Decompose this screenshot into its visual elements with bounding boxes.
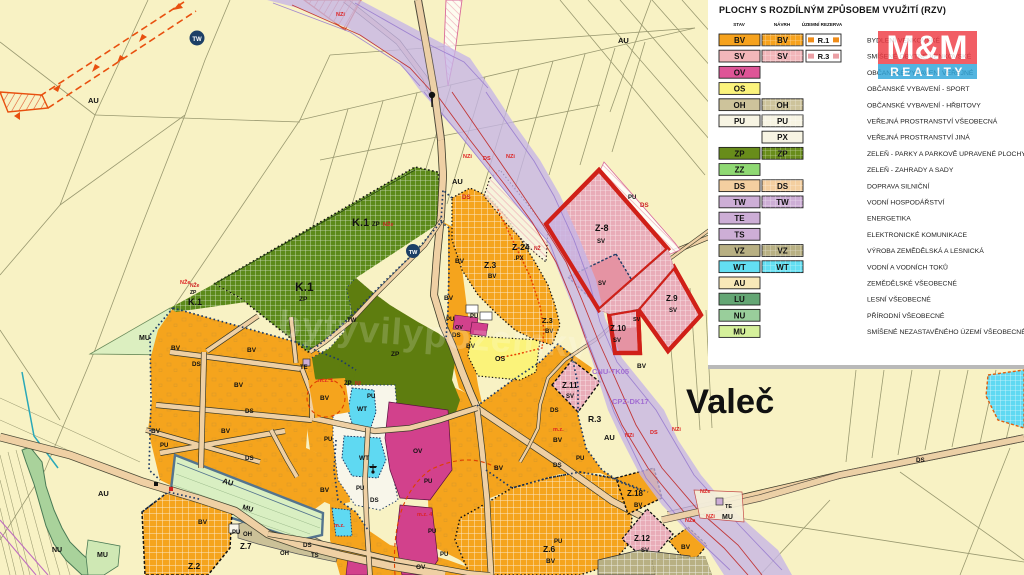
svg-text:WT: WT (733, 263, 746, 272)
svg-text:Z.11: Z.11 (562, 381, 578, 390)
svg-text:DS: DS (734, 182, 746, 191)
svg-text:NŽ: NŽ (534, 244, 541, 252)
svg-text:PU: PU (424, 479, 432, 485)
svg-text:VEŘEJNÁ PROSTRANSTVÍ VŠEOBECNÁ: VEŘEJNÁ PROSTRANSTVÍ VŠEOBECNÁ (867, 117, 998, 126)
svg-text:Z.6: Z.6 (543, 544, 556, 554)
svg-text:K.1: K.1 (295, 280, 314, 294)
svg-text:.PX: .PX (514, 256, 524, 262)
svg-text:MU: MU (139, 335, 150, 342)
svg-text:Z-24: Z-24 (512, 242, 530, 252)
svg-text:OV: OV (413, 448, 423, 455)
svg-text:TW: TW (192, 37, 202, 43)
svg-text:NZa: NZa (685, 518, 696, 524)
svg-text:TE: TE (725, 504, 732, 510)
svg-text:Z.2: Z.2 (188, 561, 201, 571)
svg-text:MU: MU (97, 552, 108, 559)
svg-text:ÚZEMNÍ REZERVA: ÚZEMNÍ REZERVA (802, 20, 843, 27)
svg-text:Z.9: Z.9 (666, 294, 678, 303)
svg-text:BV: BV (637, 363, 647, 370)
svg-text:NU: NU (734, 311, 746, 320)
svg-text:DS: DS (640, 202, 649, 209)
svg-text:PU: PU (367, 394, 375, 400)
svg-text:PŘÍRODNÍ VŠEOBECNÉ: PŘÍRODNÍ VŠEOBECNÉ (867, 311, 945, 320)
svg-text:OH: OH (280, 551, 289, 557)
svg-text:MU: MU (733, 328, 746, 337)
svg-text:ZP: ZP (372, 222, 380, 228)
svg-text:NZe: NZe (700, 489, 710, 495)
svg-text:BV: BV (198, 519, 208, 526)
svg-text:OBČANSKÉ VYBAVENÍ - HŘBITOVY: OBČANSKÉ VYBAVENÍ - HŘBITOVY (867, 100, 981, 109)
svg-text:TW: TW (409, 250, 418, 256)
svg-text:PLOCHY S ROZDÍLNÝM ZPŮSOBEM VY: PLOCHY S ROZDÍLNÝM ZPŮSOBEM VYUŽITÍ (RZV… (719, 4, 946, 15)
svg-text:ZELEŇ - PARKY A PARKOVĚ UPRAVE: ZELEŇ - PARKY A PARKOVĚ UPRAVENÉ PLOCHY (867, 149, 1024, 158)
svg-text:ZZ: ZZ (735, 166, 745, 175)
svg-text:OS: OS (734, 85, 746, 94)
svg-text:ZEMĚDĚLSKÉ VŠEOBECNÉ: ZEMĚDĚLSKÉ VŠEOBECNÉ (867, 279, 957, 288)
svg-text:NŽe: NŽe (180, 278, 190, 286)
svg-text:Z-8: Z-8 (595, 223, 609, 233)
svg-text:SMÍŠENÉ NEZASTAVĚNÉHO ÚZEMÍ VŠ: SMÍŠENÉ NEZASTAVĚNÉHO ÚZEMÍ VŠEOBECNÉ (867, 327, 1024, 336)
svg-text:LESNÍ VŠEOBECNÉ: LESNÍ VŠEOBECNÉ (867, 295, 931, 304)
svg-text:VZ: VZ (734, 247, 744, 256)
svg-text:SV: SV (734, 52, 745, 61)
svg-text:TW: TW (776, 198, 789, 207)
svg-text:BV: BV (777, 36, 789, 45)
svg-text:ELEKTRONICKÉ KOMUNIKACE: ELEKTRONICKÉ KOMUNIKACE (867, 230, 968, 239)
svg-text:VZ: VZ (777, 247, 787, 256)
svg-text:VÝROBA ZEMĚDĚLSKÁ A LESNICKÁ: VÝROBA ZEMĚDĚLSKÁ A LESNICKÁ (867, 246, 984, 255)
svg-text:STAV: STAV (733, 22, 746, 27)
svg-text:OH: OH (777, 101, 789, 110)
svg-text:BV: BV (320, 487, 330, 494)
svg-text:Z.10: Z.10 (610, 324, 627, 333)
svg-text:ZP: ZP (190, 290, 197, 296)
svg-text:DS: DS (370, 497, 379, 504)
svg-text:Z.7: Z.7 (240, 542, 252, 551)
svg-text:TS: TS (734, 230, 745, 239)
svg-text:DS: DS (303, 542, 312, 549)
svg-text:PU: PU (356, 486, 364, 492)
svg-text:ZP: ZP (734, 149, 745, 158)
svg-text:ZP: ZP (777, 149, 788, 158)
svg-text:m.z.: m.z. (334, 523, 345, 529)
svg-text:PU: PU (554, 539, 562, 545)
svg-text:OV: OV (734, 68, 746, 77)
svg-text:BV: BV (171, 345, 181, 352)
svg-text:R.3: R.3 (818, 52, 830, 61)
svg-text:NŽe: NŽe (383, 220, 393, 228)
svg-text:NZi: NZi (336, 12, 345, 18)
svg-text:PU: PU (160, 443, 168, 449)
svg-text:SV: SV (669, 308, 677, 314)
svg-text:BV: BV (247, 347, 257, 354)
svg-text:SV: SV (633, 317, 641, 323)
svg-text:M&M: M&M (886, 29, 967, 67)
svg-text:OBČANSKÉ VYBAVENÍ - SPORT: OBČANSKÉ VYBAVENÍ - SPORT (867, 84, 969, 93)
svg-text:SV: SV (777, 52, 788, 61)
svg-text:OV: OV (416, 564, 426, 571)
svg-text:DS: DS (650, 430, 658, 436)
svg-text:CNU-TK05: CNU-TK05 (592, 367, 629, 376)
svg-text:BV: BV (681, 544, 691, 551)
svg-text:BV: BV (455, 258, 465, 265)
svg-text:TE: TE (300, 365, 308, 371)
svg-text:BV: BV (494, 465, 504, 472)
svg-text:BV: BV (444, 295, 454, 302)
svg-text:BV: BV (488, 274, 496, 280)
svg-text:DS: DS (192, 361, 201, 368)
svg-text:NZi: NZi (463, 154, 472, 160)
svg-text:Z.3: Z.3 (484, 260, 497, 270)
svg-text:SV: SV (597, 239, 605, 245)
svg-text:R.3: R.3 (588, 414, 602, 424)
svg-text:NZi: NZi (625, 433, 634, 439)
svg-text:BV: BV (234, 382, 244, 389)
svg-text:NZi: NZi (672, 427, 681, 433)
svg-text:R.1: R.1 (818, 36, 830, 45)
svg-text:AU: AU (734, 279, 746, 288)
svg-text:BV: BV (221, 428, 231, 435)
svg-text:NŽe: NŽe (190, 281, 200, 289)
svg-text:m.z. 1: m.z. 1 (318, 378, 333, 384)
svg-text:DOPRAVA SILNIČNÍ: DOPRAVA SILNIČNÍ (867, 181, 930, 190)
svg-text:K.1: K.1 (188, 297, 202, 307)
svg-text:Nž: Nž (355, 381, 362, 387)
svg-text:DS: DS (245, 408, 254, 415)
svg-text:VODNÍ HOSPODÁŘSTVÍ: VODNÍ HOSPODÁŘSTVÍ (867, 198, 945, 207)
svg-text:DS: DS (462, 194, 471, 201)
svg-text:PU: PU (777, 117, 788, 126)
svg-text:MU: MU (722, 514, 733, 521)
svg-text:ZP: ZP (299, 296, 308, 303)
svg-text:m.z. 4: m.z. 4 (417, 512, 433, 518)
svg-text:BV: BV (546, 558, 556, 565)
svg-text:CPZ-DK17: CPZ-DK17 (612, 397, 649, 406)
svg-text:DS: DS (550, 407, 559, 414)
svg-text:TW: TW (733, 198, 746, 207)
svg-text:PX: PX (777, 133, 788, 142)
svg-text:PU: PU (232, 530, 240, 536)
svg-text:NZi: NZi (506, 154, 515, 160)
svg-text:PU: PU (576, 456, 584, 462)
svg-text:AU: AU (618, 36, 629, 45)
svg-text:Z.12: Z.12 (634, 534, 651, 543)
svg-text:ENERGETIKA: ENERGETIKA (867, 216, 911, 223)
svg-text:LU: LU (734, 295, 745, 304)
svg-text:PU: PU (440, 552, 448, 558)
svg-text:AU: AU (452, 177, 463, 186)
svg-text:VEŘEJNÁ PROSTRANSTVÍ JINÁ: VEŘEJNÁ PROSTRANSTVÍ JINÁ (867, 133, 970, 142)
svg-text:DS: DS (777, 182, 789, 191)
svg-text:PU: PU (628, 195, 636, 201)
svg-text:NZi: NZi (706, 514, 715, 520)
svg-text:PU: PU (734, 117, 745, 126)
svg-text:VODNÍ A VODNÍCH TOKŮ: VODNÍ A VODNÍCH TOKŮ (867, 262, 948, 271)
svg-text:REALITY: REALITY (890, 65, 966, 79)
svg-text:WT: WT (776, 263, 789, 272)
svg-text:DS: DS (553, 462, 562, 469)
svg-text:TE: TE (734, 214, 745, 223)
svg-text:AU: AU (88, 96, 99, 105)
svg-text:SV: SV (613, 338, 621, 344)
svg-text:BV: BV (320, 395, 330, 402)
svg-text:NÁVRH: NÁVRH (774, 21, 791, 27)
svg-text:OH: OH (243, 532, 252, 538)
svg-text:PU: PU (428, 529, 436, 535)
svg-text:DS: DS (916, 457, 925, 464)
svg-text:WT: WT (359, 455, 369, 462)
svg-text:Z.18: Z.18 (627, 489, 644, 498)
svg-text:AU: AU (604, 433, 615, 442)
svg-text:WT: WT (357, 406, 367, 413)
svg-text:Valeč: Valeč (686, 383, 774, 421)
svg-text:ZELEŇ - ZAHRADY A SADY: ZELEŇ - ZAHRADY A SADY (867, 165, 954, 174)
svg-text:K.1: K.1 (352, 217, 369, 229)
svg-text:DS: DS (245, 455, 254, 462)
svg-text:BV: BV (734, 36, 746, 45)
svg-text:ZP: ZP (344, 381, 352, 387)
svg-text:BV: BV (151, 428, 161, 435)
svg-text:AU: AU (98, 489, 109, 498)
svg-text:SV: SV (641, 548, 649, 554)
svg-text:TS: TS (311, 553, 319, 559)
svg-text:OH: OH (734, 101, 746, 110)
svg-text:BV: BV (634, 503, 642, 509)
svg-text:PU: PU (324, 437, 332, 443)
svg-text:SV: SV (598, 281, 606, 287)
svg-text:DS: DS (483, 156, 491, 162)
svg-text:m.z.: m.z. (553, 427, 564, 433)
svg-text:NU: NU (52, 547, 62, 554)
svg-text:SV: SV (566, 394, 574, 400)
svg-text:BV: BV (553, 437, 563, 444)
